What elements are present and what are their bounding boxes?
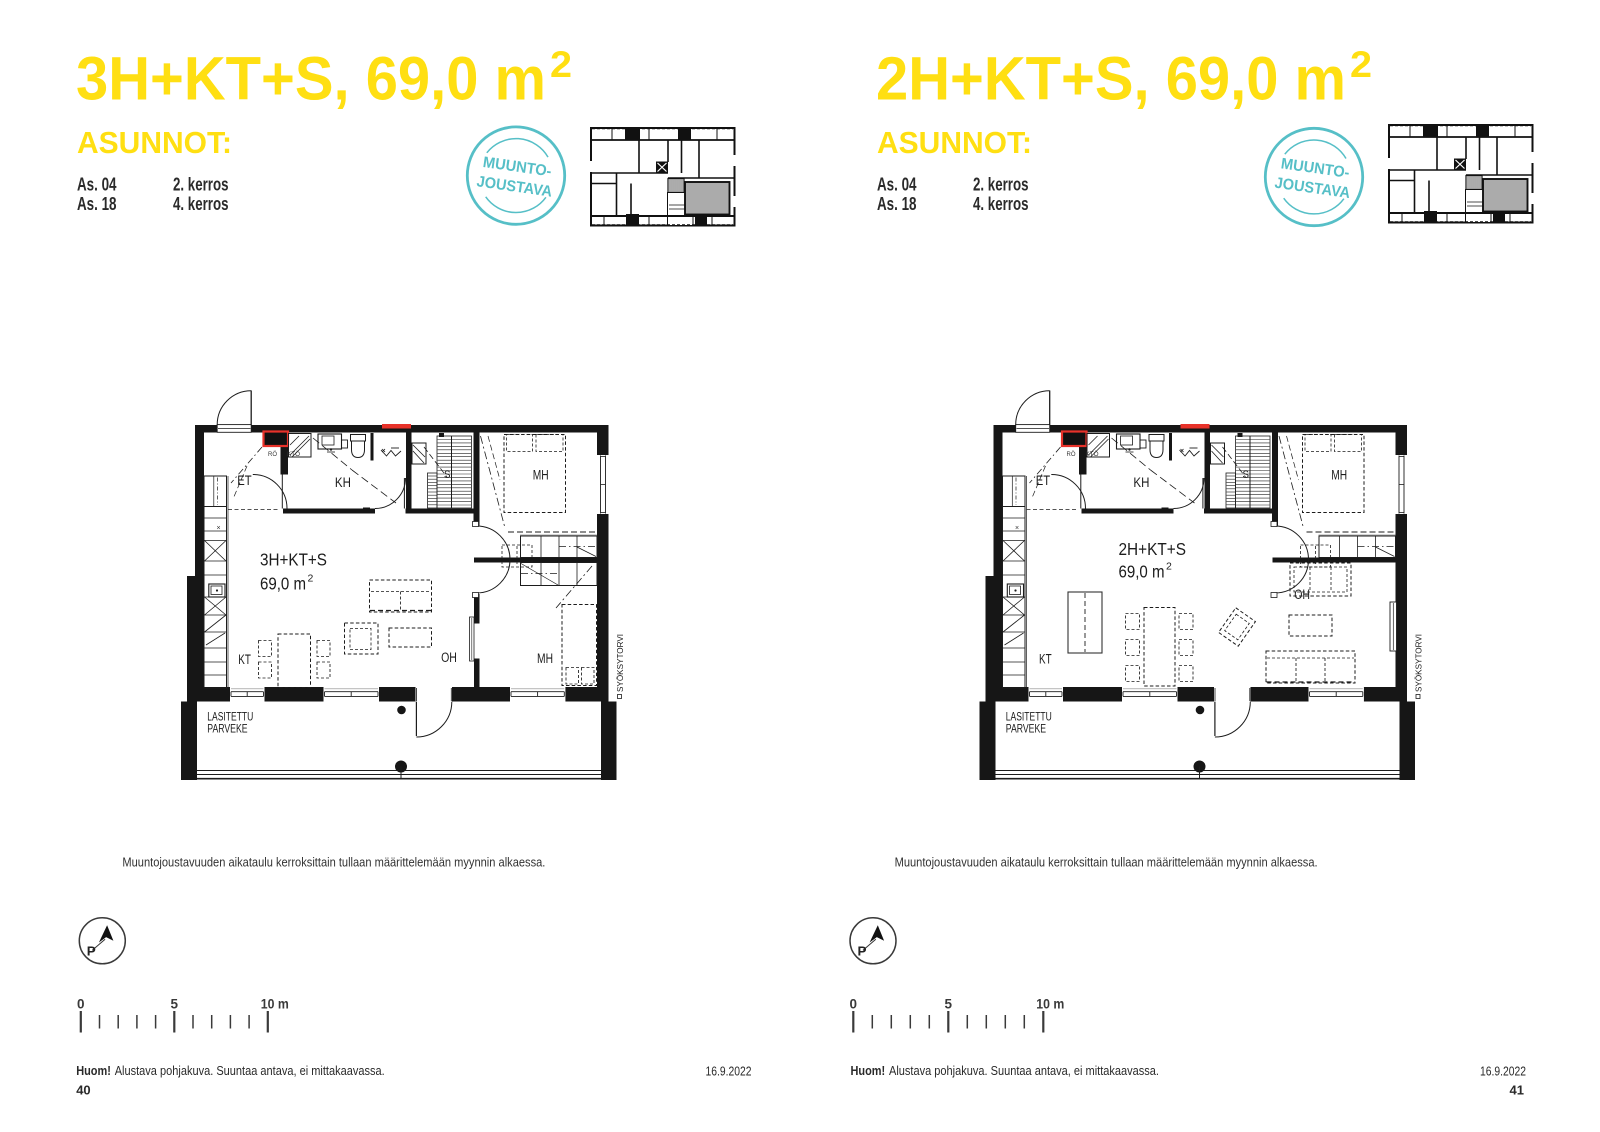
svg-text:As. 18: As. 18 [77,194,117,214]
svg-text:KH: KH [335,475,351,490]
svg-text:×: × [1015,525,1019,532]
svg-text:2. kerros: 2. kerros [173,175,229,195]
svg-text:Huom!: Huom! [76,1063,111,1078]
svg-text:RÖ: RÖ [268,450,277,458]
svg-text:69,0 m: 69,0 m [260,574,306,594]
svg-text:0: 0 [850,997,858,1012]
svg-text:ASUNNOT:: ASUNNOT: [877,125,1032,160]
svg-text:PARVEKE: PARVEKE [1006,721,1046,735]
svg-text:Muuntojoustavuuden aikataulu k: Muuntojoustavuuden aikataulu kerroksitta… [895,856,1318,870]
svg-text:10 m: 10 m [261,997,289,1012]
svg-text:MH: MH [1331,467,1347,482]
svg-text:KT: KT [238,652,251,667]
svg-text:P: P [87,945,96,959]
svg-text:KH: KH [1133,475,1149,490]
svg-text:MH: MH [537,651,553,666]
svg-text:OH: OH [441,650,457,665]
svg-text:Huom!: Huom! [851,1063,886,1078]
svg-text:×: × [217,525,221,532]
svg-text:4. kerros: 4. kerros [173,194,229,214]
svg-text:5: 5 [171,997,179,1012]
svg-text:SYÖKSYTORVI: SYÖKSYTORVI [1415,634,1424,692]
svg-text:2: 2 [1166,561,1172,573]
svg-text:Muuntojoustavuuden aikataulu k: Muuntojoustavuuden aikataulu kerroksitta… [122,856,545,870]
svg-text:2: 2 [308,573,314,585]
svg-text:ET: ET [1036,473,1050,488]
svg-text:Alustava pohjakuva. Suuntaa an: Alustava pohjakuva. Suuntaa antava, ei m… [889,1063,1159,1078]
svg-text:16.9.2022: 16.9.2022 [706,1065,752,1079]
svg-text:Alustava pohjakuva. Suuntaa an: Alustava pohjakuva. Suuntaa antava, ei m… [115,1063,385,1078]
svg-text:2H+KT+S, 69,0 m: 2H+KT+S, 69,0 m [876,45,1346,113]
svg-text:OH: OH [1294,587,1310,602]
svg-text:RÖ: RÖ [1067,450,1076,458]
svg-text:KT: KT [1039,651,1052,666]
svg-text:As. 04: As. 04 [77,175,117,195]
svg-text:2: 2 [1350,44,1372,85]
svg-text:69,0 m: 69,0 m [1119,562,1165,582]
svg-text:5: 5 [945,997,953,1012]
svg-text:2H+KT+S: 2H+KT+S [1119,539,1187,559]
svg-text:0: 0 [77,997,85,1012]
svg-text:As. 18: As. 18 [877,194,917,214]
svg-text:41: 41 [1510,1083,1524,1098]
svg-text:ASUNNOT:: ASUNNOT: [77,125,232,160]
svg-text:SYÖKSYTORVI: SYÖKSYTORVI [616,634,625,692]
svg-text:ET: ET [237,473,251,488]
svg-text:As. 04: As. 04 [877,175,917,195]
svg-text:2. kerros: 2. kerros [973,175,1029,195]
svg-text:4. kerros: 4. kerros [973,194,1029,214]
svg-text:2: 2 [550,44,572,85]
svg-text:3H+KT+S: 3H+KT+S [260,550,327,570]
svg-text:3H+KT+S, 69,0 m: 3H+KT+S, 69,0 m [76,45,546,113]
svg-text:40: 40 [76,1083,90,1098]
svg-text:P: P [858,945,867,959]
svg-text:PARVEKE: PARVEKE [207,721,247,735]
svg-text:MH: MH [533,467,549,482]
svg-text:16.9.2022: 16.9.2022 [1480,1065,1526,1079]
svg-text:10 m: 10 m [1036,997,1064,1012]
